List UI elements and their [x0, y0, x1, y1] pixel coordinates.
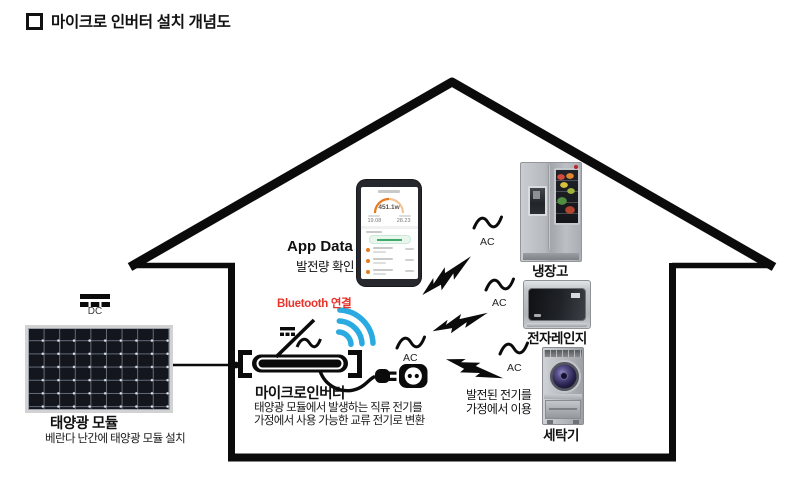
microwave-logo — [534, 314, 541, 317]
house-roof — [130, 82, 774, 267]
app-row-icon — [366, 259, 370, 263]
ac-label-outlet: AC — [403, 352, 418, 364]
app-stat-caption-left — [368, 215, 380, 217]
microwave-display — [571, 293, 580, 298]
usage-note-line1: 발전된 전기를 — [466, 389, 531, 403]
dc-label: DC — [80, 306, 110, 317]
app-gauge-value: 451.1w — [361, 204, 418, 211]
smartphone: 451.1w 19.08 28.23 — [357, 180, 421, 286]
app-divider — [361, 226, 418, 229]
microwave-oven — [523, 280, 591, 329]
micro-inverter-device-icon — [241, 353, 360, 376]
fridge-logo — [574, 165, 578, 169]
app-list-row — [366, 269, 414, 277]
app-stat-left: 19.08 — [368, 218, 382, 224]
refrigerator — [520, 162, 582, 262]
microwave-glass-door — [528, 288, 586, 321]
smartphone-screen: 451.1w 19.08 28.23 — [361, 187, 418, 279]
washer-pedestal — [545, 400, 581, 419]
washer-control-panel — [544, 350, 582, 357]
ac-label-microwave: AC — [492, 297, 507, 309]
app-data-title: App Data — [287, 238, 353, 255]
ac-label-fridge: AC — [480, 236, 495, 248]
app-list-row — [366, 247, 414, 255]
app-stat-caption-right — [399, 215, 411, 217]
fridge-instaview-panel — [554, 168, 580, 225]
bluetooth-waves-icon — [339, 310, 373, 344]
inverter-desc-line2: 가정에서 사용 가능한 교류 전기로 변환 — [254, 412, 425, 428]
bolt-to-fridge — [416, 252, 477, 301]
ac-sine-microwave — [486, 279, 514, 290]
app-green-pill — [369, 235, 411, 244]
dc-ac-conversion-icon — [276, 320, 321, 357]
app-stat-right: 28.23 — [397, 218, 411, 224]
usage-note-line2: 가정에서 이용 — [466, 403, 531, 417]
bluetooth-label: Bluetooth 연결 — [277, 295, 351, 311]
ac-sine-outlet — [397, 337, 425, 348]
fridge-label: 냉장고 — [520, 260, 580, 280]
bolt-to-microwave — [430, 308, 490, 338]
fridge-dispenser — [528, 186, 547, 216]
microwave-label: 전자레인지 — [521, 327, 593, 347]
fridge-kickplate — [523, 253, 579, 260]
fridge-door-seam — [548, 165, 550, 249]
solar-module-caption: 베란다 난간에 태양광 모듈 설치 — [45, 430, 185, 446]
app-row-icon — [366, 270, 370, 274]
app-section-bar — [366, 231, 382, 233]
ac-label-washer: AC — [507, 362, 522, 374]
solar-panel — [25, 325, 173, 413]
bolt-to-washer — [443, 350, 505, 389]
washing-machine — [542, 347, 584, 425]
washer-label: 세탁기 — [540, 424, 582, 444]
washer-door — [548, 360, 581, 393]
app-data-subtitle: 발전량 확인 — [296, 256, 354, 275]
washer-mid-trim — [544, 394, 582, 399]
app-header-bar — [378, 190, 400, 193]
ac-sine-fridge — [474, 217, 502, 228]
usage-note: 발전된 전기를 가정에서 이용 — [466, 389, 531, 416]
diagram-canvas: 마이크로 인버터 설치 개념도 — [0, 0, 800, 485]
app-row-icon — [366, 248, 370, 252]
app-list-row — [366, 258, 414, 266]
electricity-bolts — [416, 252, 505, 389]
